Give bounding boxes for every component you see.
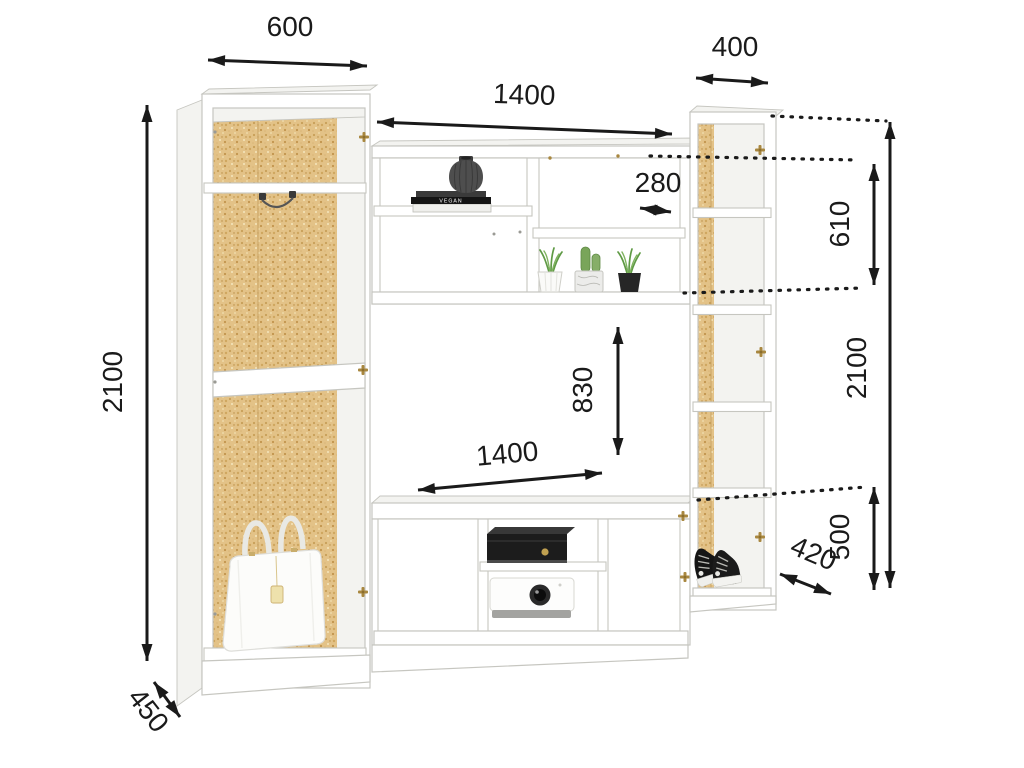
- dim-label: 400: [712, 31, 759, 62]
- dim-label: 610: [824, 201, 855, 248]
- arrowhead-icon: [869, 164, 880, 181]
- dim-label: 450: [122, 682, 175, 738]
- dim-tv-niche-height: 830: [567, 327, 624, 455]
- books-decor: VEGAN: [411, 191, 491, 212]
- arrowhead-icon: [869, 573, 880, 590]
- dim-shoe-niche-height: 500: [824, 487, 880, 590]
- dim-label: 280: [635, 167, 682, 198]
- dim-hutch-height: 610: [824, 164, 880, 285]
- screw-icon: [519, 231, 522, 234]
- right-tower: [690, 106, 783, 612]
- right-tower-inner-wall: [714, 124, 764, 590]
- arrowhead-icon: [142, 105, 153, 122]
- tv-stand-plinth: [372, 645, 688, 672]
- left-wardrobe-shelf: [204, 183, 366, 193]
- hutch-right-shelf: [533, 228, 685, 238]
- screw-icon: [213, 380, 216, 383]
- screw-icon: [548, 156, 551, 159]
- arrowhead-icon: [780, 574, 798, 585]
- furniture-dimension-diagram: VEGAN: [0, 0, 1024, 768]
- left-wardrobe: [177, 85, 377, 706]
- tv-stand-bottom-board: [374, 631, 688, 645]
- tv-stand-middle-shelf: [480, 562, 606, 571]
- dim-left-cabinet-depth: 450: [122, 682, 180, 738]
- cash-box-decor: [487, 527, 575, 563]
- arrowhead-icon: [377, 117, 394, 128]
- arrowhead-icon: [869, 268, 880, 285]
- left-wardrobe-top-surface: [202, 85, 377, 94]
- arrowhead-icon: [885, 122, 896, 139]
- tv-stand-left-compartment: [378, 519, 478, 631]
- arrowhead-icon: [813, 583, 831, 594]
- arrowhead-icon: [613, 438, 624, 455]
- top-hutch: VEGAN: [372, 138, 698, 304]
- arrowhead-icon: [869, 487, 880, 504]
- arrowhead-icon: [885, 571, 896, 588]
- screw-icon: [493, 233, 496, 236]
- projector-decor: [490, 578, 574, 618]
- screw-icon: [213, 130, 216, 133]
- dim-hutch-width: 1400: [377, 78, 672, 139]
- right-tower-shelf: [693, 402, 771, 412]
- dim-left-cabinet-height: 2100: [97, 105, 153, 661]
- tv-stand-right-compartment: [608, 519, 680, 631]
- tv-stand-top-surface: [372, 496, 696, 503]
- book-spine-label: VEGAN: [439, 199, 462, 205]
- dim-label: 1400: [493, 78, 556, 111]
- tv-stand-top-board: [372, 503, 690, 519]
- screw-icon: [213, 612, 216, 615]
- hutch-top-surface: [372, 138, 698, 146]
- dim-tv-stand-width: 1400: [418, 435, 602, 494]
- dim-label: 2100: [97, 351, 128, 413]
- dim-label: 830: [567, 367, 598, 414]
- cork-back-panel: [698, 124, 714, 590]
- dim-label: 600: [267, 11, 314, 42]
- dim-label: 2100: [841, 337, 872, 399]
- right-tower-shelf: [693, 208, 771, 218]
- arrowhead-icon: [142, 644, 153, 661]
- arrowhead-icon: [350, 60, 367, 71]
- dim-left-cabinet-width: 600: [208, 11, 367, 71]
- right-tower-shelf: [693, 488, 771, 498]
- right-tower-shelf: [693, 305, 771, 315]
- screw-icon: [616, 154, 619, 157]
- arrowhead-icon: [655, 128, 672, 139]
- tv-stand: [372, 496, 696, 672]
- left-wardrobe-plinth: [202, 655, 370, 695]
- extension-line: [772, 116, 886, 121]
- dim-label: 1400: [475, 435, 540, 471]
- left-wardrobe-side-panel: [177, 100, 202, 706]
- hutch-bottom-board: [372, 292, 690, 304]
- diagram-canvas: VEGAN: [0, 0, 1024, 768]
- arrowhead-icon: [208, 55, 225, 66]
- arrowhead-icon: [613, 327, 624, 344]
- hutch-top-board: [372, 146, 690, 158]
- dim-right-cabinet-width: 400: [696, 31, 768, 87]
